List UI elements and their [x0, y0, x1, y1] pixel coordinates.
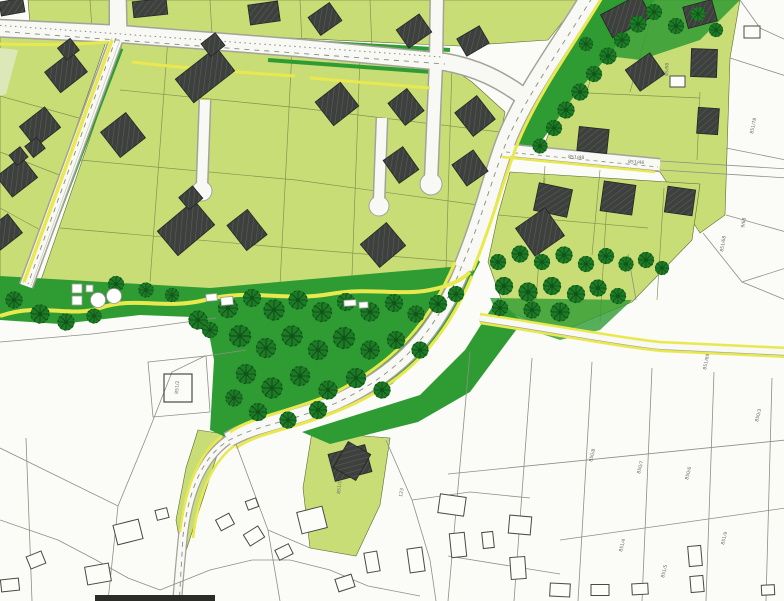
tree-icon: [412, 342, 429, 359]
tree-icon: [586, 66, 602, 82]
tree-icon: [543, 277, 561, 295]
parcel-label: 85/68: [664, 63, 670, 77]
tree-icon: [495, 277, 513, 295]
site-plan-map: 851/48 851/46 85/68 851/78 9/68 851/68 8…: [0, 0, 784, 601]
scan-artifact-bar: [95, 595, 215, 601]
tree-icon: [290, 366, 310, 386]
tree-icon: [519, 283, 538, 302]
tree-icon: [579, 37, 593, 51]
tree-icon: [165, 288, 179, 302]
tree-icon: [374, 382, 391, 399]
tree-icon: [558, 102, 575, 119]
tree-icon: [429, 295, 447, 313]
tree-icon: [556, 247, 573, 264]
tree-icon: [709, 23, 723, 37]
tree-icon: [256, 338, 276, 358]
tree-icon: [346, 368, 366, 388]
tree-icon: [333, 327, 355, 349]
tree-icon: [282, 326, 303, 347]
tree-icon: [546, 120, 562, 136]
tree-icon: [408, 306, 425, 323]
tree-icon: [262, 378, 283, 399]
tree-icon: [448, 286, 464, 302]
tree-icon: [614, 32, 630, 48]
tree-icon: [361, 341, 380, 360]
tree-icon: [668, 18, 684, 34]
tree-icon: [567, 285, 585, 303]
tree-icon: [490, 254, 506, 270]
tree-icon: [646, 4, 662, 20]
tree-icon: [289, 291, 308, 310]
tree-icon: [309, 401, 327, 419]
tree-icon: [31, 305, 50, 324]
tree-icon: [655, 261, 669, 275]
tree-icon: [385, 294, 403, 312]
map-canvas: 851/48 851/46 85/68 851/78 9/68 851/68 8…: [0, 0, 784, 601]
tree-icon: [630, 16, 647, 33]
tree-icon: [512, 246, 529, 263]
tree-icon: [229, 325, 251, 347]
tree-icon: [619, 257, 634, 272]
road-parcel-label: 851/48: [568, 154, 585, 161]
tree-icon: [312, 302, 332, 322]
tree-icon: [610, 288, 626, 304]
tree-icon: [387, 331, 405, 349]
tree-icon: [600, 48, 617, 65]
tree-icon: [319, 381, 338, 400]
tree-icon: [590, 280, 607, 297]
tree-icon: [264, 300, 285, 321]
tree-icon: [202, 322, 218, 338]
tree-icon: [492, 300, 508, 316]
tree-icon: [638, 252, 654, 268]
tree-icon: [6, 292, 23, 309]
tree-icon: [578, 256, 594, 272]
tree-icon: [598, 248, 614, 264]
tree-icon: [249, 403, 267, 421]
tree-icon: [551, 303, 570, 322]
parcel-label: 851/2: [174, 380, 181, 394]
tree-icon: [691, 7, 706, 22]
tree-icon: [139, 283, 154, 298]
tree-icon: [534, 254, 550, 270]
tree-icon: [243, 289, 261, 307]
tree-icon: [87, 309, 102, 324]
tree-icon: [308, 340, 328, 360]
tree-icon: [58, 314, 75, 331]
tree-icon: [533, 139, 548, 154]
tree-icon: [572, 84, 589, 101]
tree-icon: [236, 364, 256, 384]
tree-icon: [524, 302, 541, 319]
tree-icon: [280, 412, 297, 429]
road-parcel-label: 851/46: [628, 159, 645, 166]
tree-icon: [226, 390, 243, 407]
